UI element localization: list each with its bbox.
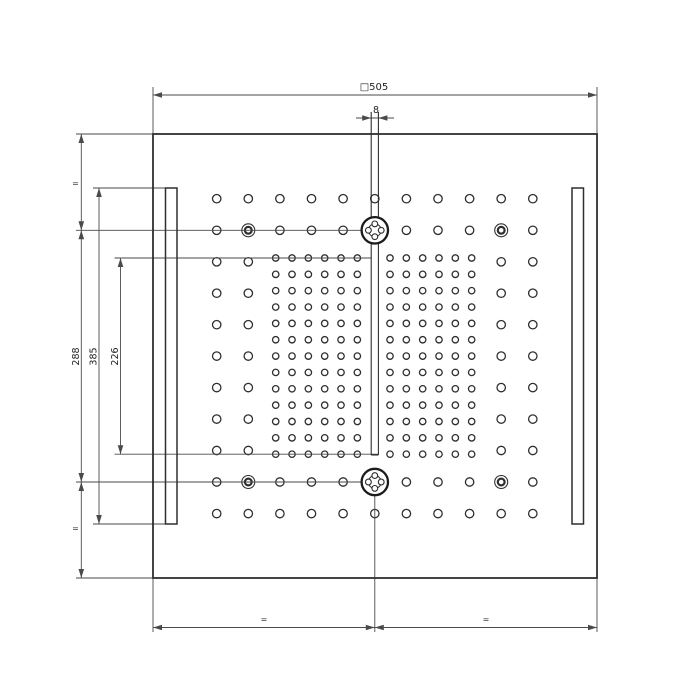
arrow-eq-bottom-meet xyxy=(79,482,85,491)
spray-hole xyxy=(213,321,221,329)
spray-hole xyxy=(244,352,252,360)
technical-drawing-page: Square ceiling shower head – dimensioned… xyxy=(0,0,700,700)
spray-hole-dense xyxy=(468,288,474,294)
spray-hole-dense xyxy=(354,369,360,375)
spray-hole xyxy=(497,509,505,517)
spray-hole xyxy=(529,321,537,329)
dim-label-equal-br: = xyxy=(483,615,490,624)
dim-label-288: 288 xyxy=(71,347,82,365)
spray-hole-dense xyxy=(354,418,360,424)
body-jet-petal xyxy=(378,479,384,485)
spray-hole-dense xyxy=(436,386,442,392)
spray-hole-dense xyxy=(338,418,344,424)
spray-hole-dense xyxy=(452,304,458,310)
spray-hole-dense xyxy=(305,418,311,424)
spray-hole xyxy=(497,446,505,454)
spray-hole-dense xyxy=(403,304,409,310)
spray-hole xyxy=(402,478,410,486)
spray-hole-dense xyxy=(273,402,279,408)
arrow-288-top-meet xyxy=(79,221,85,230)
spray-hole xyxy=(497,415,505,423)
spray-hole-dense xyxy=(338,435,344,441)
spray-hole-dense xyxy=(436,288,442,294)
spray-hole xyxy=(307,509,315,517)
spray-hole-dense xyxy=(273,435,279,441)
spray-hole-dense xyxy=(452,386,458,392)
spray-hole xyxy=(244,415,252,423)
arrow-385-top xyxy=(96,188,102,197)
spray-hole xyxy=(529,226,537,234)
spray-hole-dense xyxy=(338,386,344,392)
body-jet-petal xyxy=(372,473,378,479)
spray-hole-dense xyxy=(289,337,295,343)
dim-label-equal-bl: = xyxy=(261,615,268,624)
spray-hole-dense xyxy=(452,435,458,441)
spray-hole-dense xyxy=(452,288,458,294)
spray-hole-dense xyxy=(419,353,425,359)
spray-hole xyxy=(213,258,221,266)
spray-hole-dense xyxy=(305,435,311,441)
spray-hole-dense xyxy=(354,320,360,326)
spray-hole-dense xyxy=(436,353,442,359)
spray-hole-dense xyxy=(419,288,425,294)
spray-hole xyxy=(497,289,505,297)
spray-hole-dense xyxy=(273,418,279,424)
spray-hole-dense xyxy=(419,369,425,375)
spray-hole-dense xyxy=(452,320,458,326)
spray-hole xyxy=(465,509,473,517)
dim-label-equal-top: = xyxy=(72,179,79,188)
spray-hole-dense xyxy=(305,271,311,277)
spray-hole-dense xyxy=(273,353,279,359)
spray-hole xyxy=(244,509,252,517)
spray-hole xyxy=(529,415,537,423)
spray-hole xyxy=(497,383,505,391)
spray-hole-dense xyxy=(403,451,409,457)
spray-hole xyxy=(465,195,473,203)
spray-hole-dense xyxy=(354,353,360,359)
spray-hole-dense xyxy=(403,353,409,359)
spray-hole-dense xyxy=(338,304,344,310)
arrow-bottom-eq2-right xyxy=(588,625,597,631)
spray-hole-dense xyxy=(289,288,295,294)
spray-hole-dense xyxy=(354,337,360,343)
spray-hole-dense xyxy=(436,271,442,277)
spray-hole xyxy=(465,226,473,234)
dim-label-226: 226 xyxy=(110,347,121,365)
spray-hole xyxy=(276,195,284,203)
spray-hole-dense xyxy=(321,304,327,310)
spray-hole-dense xyxy=(289,386,295,392)
dim-label-overall-505: □505 xyxy=(360,82,389,93)
jet-nozzles xyxy=(362,217,388,495)
spray-hole-dense xyxy=(289,369,295,375)
spray-hole-dense xyxy=(403,369,409,375)
spray-hole xyxy=(244,289,252,297)
spray-hole-dense xyxy=(338,369,344,375)
spray-hole-dense xyxy=(354,271,360,277)
spray-hole xyxy=(402,226,410,234)
spray-hole xyxy=(529,383,537,391)
spray-hole-dense xyxy=(468,255,474,261)
spray-hole-dense xyxy=(354,304,360,310)
spray-hole xyxy=(529,195,537,203)
spray-hole-dense xyxy=(338,320,344,326)
arrow-bottom-eq1-left xyxy=(153,625,162,631)
ringed-hole-ring xyxy=(498,227,505,234)
spray-hole-dense xyxy=(419,271,425,277)
arrow-226-top xyxy=(118,258,124,267)
spray-hole xyxy=(339,195,347,203)
spray-hole-dense xyxy=(387,451,393,457)
spray-hole-dense xyxy=(419,402,425,408)
spray-hole-dense xyxy=(354,386,360,392)
arrow-505-right xyxy=(588,92,597,98)
spray-hole xyxy=(529,446,537,454)
spray-hole-dense xyxy=(354,435,360,441)
spray-hole-dense xyxy=(338,337,344,343)
spray-hole xyxy=(497,195,505,203)
spray-hole-dense xyxy=(436,369,442,375)
spray-hole-dense xyxy=(436,402,442,408)
spray-hole xyxy=(307,195,315,203)
spray-hole-dense xyxy=(273,386,279,392)
spray-hole-dense xyxy=(419,435,425,441)
technical-drawing-svg: Square ceiling shower head – dimensioned… xyxy=(0,0,700,700)
spray-hole-dense xyxy=(273,320,279,326)
arrow-288-bottom xyxy=(79,473,85,482)
spray-hole-dense xyxy=(468,304,474,310)
arrow-bottom-eq2-left xyxy=(375,625,384,631)
spray-hole-dense xyxy=(338,288,344,294)
dim-label-385: 385 xyxy=(89,347,100,365)
right-slot xyxy=(572,188,584,524)
spray-hole-dense xyxy=(403,271,409,277)
spray-hole-dense xyxy=(436,304,442,310)
spray-hole-dense xyxy=(387,288,393,294)
body-jet-petal xyxy=(372,234,378,240)
spray-hole xyxy=(276,509,284,517)
arrowheads xyxy=(79,92,598,630)
spray-hole xyxy=(434,478,442,486)
spray-hole-dense xyxy=(289,418,295,424)
spray-hole-dense xyxy=(289,271,295,277)
spray-hole xyxy=(213,446,221,454)
spray-hole-dense xyxy=(387,386,393,392)
spray-hole xyxy=(434,195,442,203)
spray-hole-dense xyxy=(452,271,458,277)
spray-hole-dense xyxy=(273,369,279,375)
spray-hole xyxy=(497,258,505,266)
spray-hole-dense xyxy=(321,320,327,326)
spray-hole-dense xyxy=(273,337,279,343)
spray-hole-dense xyxy=(403,435,409,441)
spray-hole-dense xyxy=(436,320,442,326)
spray-hole-dense xyxy=(419,337,425,343)
spray-hole-dense xyxy=(403,337,409,343)
spray-hole-dense xyxy=(468,271,474,277)
spray-hole-dense xyxy=(436,435,442,441)
left-slot xyxy=(166,188,178,524)
spray-hole-dense xyxy=(338,271,344,277)
spray-hole-dense xyxy=(419,451,425,457)
spray-hole-dense xyxy=(387,418,393,424)
spray-hole xyxy=(402,509,410,517)
spray-hole-dense xyxy=(321,435,327,441)
spray-hole-dense xyxy=(321,353,327,359)
spray-hole xyxy=(529,509,537,517)
body-jet-petal xyxy=(366,227,372,233)
spray-hole-dense xyxy=(452,337,458,343)
spray-hole-dense xyxy=(403,255,409,261)
spray-hole-dense xyxy=(321,271,327,277)
spray-hole-dense xyxy=(305,369,311,375)
spray-hole xyxy=(497,321,505,329)
spray-hole xyxy=(244,321,252,329)
arrow-8-left xyxy=(362,115,371,121)
spray-hole-dense xyxy=(452,353,458,359)
arrow-505-left xyxy=(153,92,162,98)
spray-hole xyxy=(497,352,505,360)
spray-hole-dense xyxy=(468,402,474,408)
spray-hole-dense xyxy=(452,255,458,261)
spray-hole xyxy=(529,478,537,486)
spray-hole-dense xyxy=(452,451,458,457)
spray-hole-dense xyxy=(468,337,474,343)
spray-hole-dense xyxy=(468,320,474,326)
spray-hole-dense xyxy=(321,288,327,294)
spray-hole-dense xyxy=(468,418,474,424)
arrow-8-right xyxy=(378,115,387,121)
spray-hole-dense xyxy=(436,451,442,457)
spray-hole xyxy=(529,258,537,266)
spray-hole-dense xyxy=(419,320,425,326)
spray-hole-dense xyxy=(354,288,360,294)
spray-hole-dense xyxy=(436,418,442,424)
body-jet-petal xyxy=(372,221,378,227)
spray-hole-dense xyxy=(419,304,425,310)
arrow-bottom-eq1-right xyxy=(366,625,375,631)
spray-hole-dense xyxy=(468,353,474,359)
spray-hole-dense xyxy=(273,304,279,310)
spray-hole xyxy=(213,383,221,391)
spray-hole-dense xyxy=(403,320,409,326)
spray-hole-dense xyxy=(387,402,393,408)
spray-hole-dense xyxy=(403,418,409,424)
spray-hole-dense xyxy=(419,255,425,261)
spray-hole-dense xyxy=(354,402,360,408)
spray-hole-dense xyxy=(273,271,279,277)
spray-hole xyxy=(371,195,379,203)
spray-hole-dense xyxy=(321,337,327,343)
spray-hole-dense xyxy=(468,451,474,457)
arrow-eq-bottom xyxy=(79,569,85,578)
spray-hole xyxy=(244,446,252,454)
spray-hole-dense xyxy=(289,304,295,310)
spray-hole-dense xyxy=(436,255,442,261)
spray-hole xyxy=(213,195,221,203)
dim-label-equal-bottom: = xyxy=(72,524,79,533)
ringed-hole-ring xyxy=(498,479,505,486)
spray-hole-dense xyxy=(436,337,442,343)
dimension-labels: □5058=288385226=== xyxy=(71,82,489,624)
spray-hole-dense xyxy=(387,369,393,375)
body-jet-petal xyxy=(378,227,384,233)
spray-hole-dense xyxy=(289,402,295,408)
spray-hole-dense xyxy=(452,369,458,375)
spray-hole-dense xyxy=(289,435,295,441)
spray-hole xyxy=(465,478,473,486)
spray-hole xyxy=(213,509,221,517)
spray-hole-dense xyxy=(305,320,311,326)
spray-hole-dense xyxy=(419,386,425,392)
spray-hole-dense xyxy=(305,402,311,408)
spray-hole-dense xyxy=(452,402,458,408)
spray-hole xyxy=(213,415,221,423)
spray-hole-dense xyxy=(321,418,327,424)
body-jet-petal xyxy=(372,486,378,492)
spray-hole-dense xyxy=(321,402,327,408)
structure-and-dimensions xyxy=(76,87,597,632)
spray-hole-dense xyxy=(305,386,311,392)
spray-hole-dense xyxy=(338,402,344,408)
spray-hole xyxy=(529,352,537,360)
spray-hole xyxy=(213,289,221,297)
spray-hole-dense xyxy=(321,369,327,375)
spray-hole-dense xyxy=(305,337,311,343)
spray-hole-dense xyxy=(387,435,393,441)
spray-hole xyxy=(434,226,442,234)
spray-hole-dense xyxy=(452,418,458,424)
spray-hole-dense xyxy=(468,369,474,375)
spray-hole-dense xyxy=(403,288,409,294)
arrow-385-bottom xyxy=(96,515,102,524)
spray-hole-dense xyxy=(468,435,474,441)
spray-hole-dense xyxy=(289,320,295,326)
spray-hole-dense xyxy=(273,288,279,294)
spray-hole xyxy=(529,289,537,297)
spray-hole xyxy=(213,352,221,360)
dim-label-channel-8: 8 xyxy=(373,105,379,116)
arrow-226-bottom xyxy=(118,445,124,454)
spray-hole-dense xyxy=(403,402,409,408)
spray-hole-dense xyxy=(305,288,311,294)
spray-hole-dense xyxy=(387,304,393,310)
spray-hole-dense xyxy=(387,320,393,326)
spray-hole xyxy=(402,195,410,203)
spray-hole-dense xyxy=(468,386,474,392)
spray-hole-dense xyxy=(305,353,311,359)
body-jet-petal xyxy=(366,479,372,485)
spray-hole xyxy=(339,509,347,517)
spray-hole-dense xyxy=(338,353,344,359)
spray-hole-dense xyxy=(387,271,393,277)
spray-hole xyxy=(434,509,442,517)
arrow-288-top xyxy=(79,230,85,239)
spray-hole-dense xyxy=(321,386,327,392)
spray-hole-dense xyxy=(305,304,311,310)
spray-hole-dense xyxy=(403,386,409,392)
arrow-eq-top xyxy=(79,134,85,143)
spray-hole xyxy=(244,383,252,391)
spray-hole-dense xyxy=(289,353,295,359)
spray-hole xyxy=(244,195,252,203)
spray-hole xyxy=(244,258,252,266)
spray-hole-dense xyxy=(387,337,393,343)
spray-hole-dense xyxy=(387,255,393,261)
spray-hole-dense xyxy=(387,353,393,359)
spray-hole-dense xyxy=(419,418,425,424)
